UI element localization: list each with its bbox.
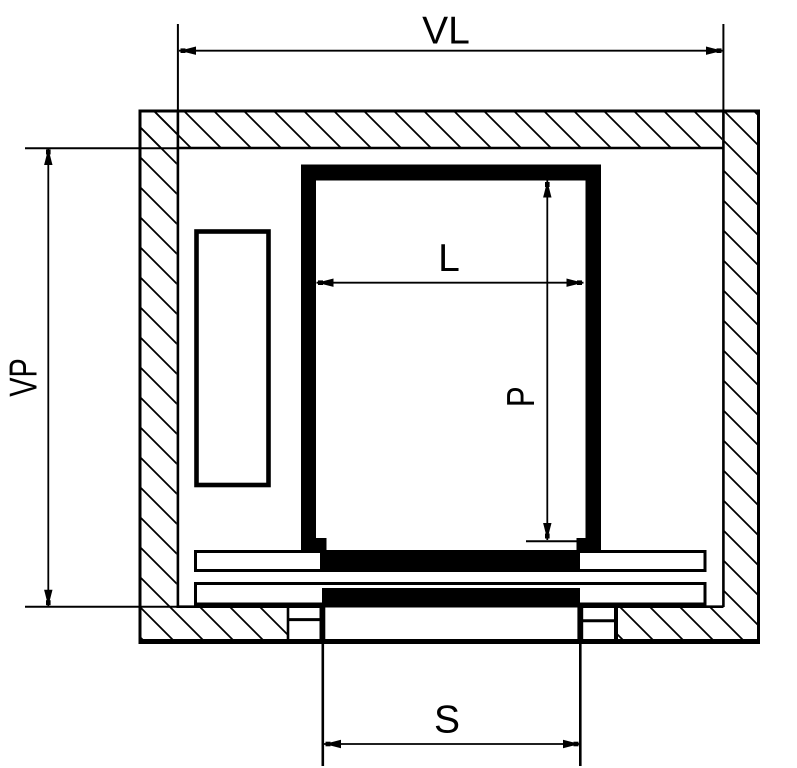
svg-text:VP: VP	[2, 358, 45, 396]
svg-text:L: L	[438, 237, 460, 280]
svg-text:VL: VL	[422, 10, 470, 53]
svg-text:P: P	[500, 386, 543, 407]
svg-text:S: S	[434, 699, 460, 742]
